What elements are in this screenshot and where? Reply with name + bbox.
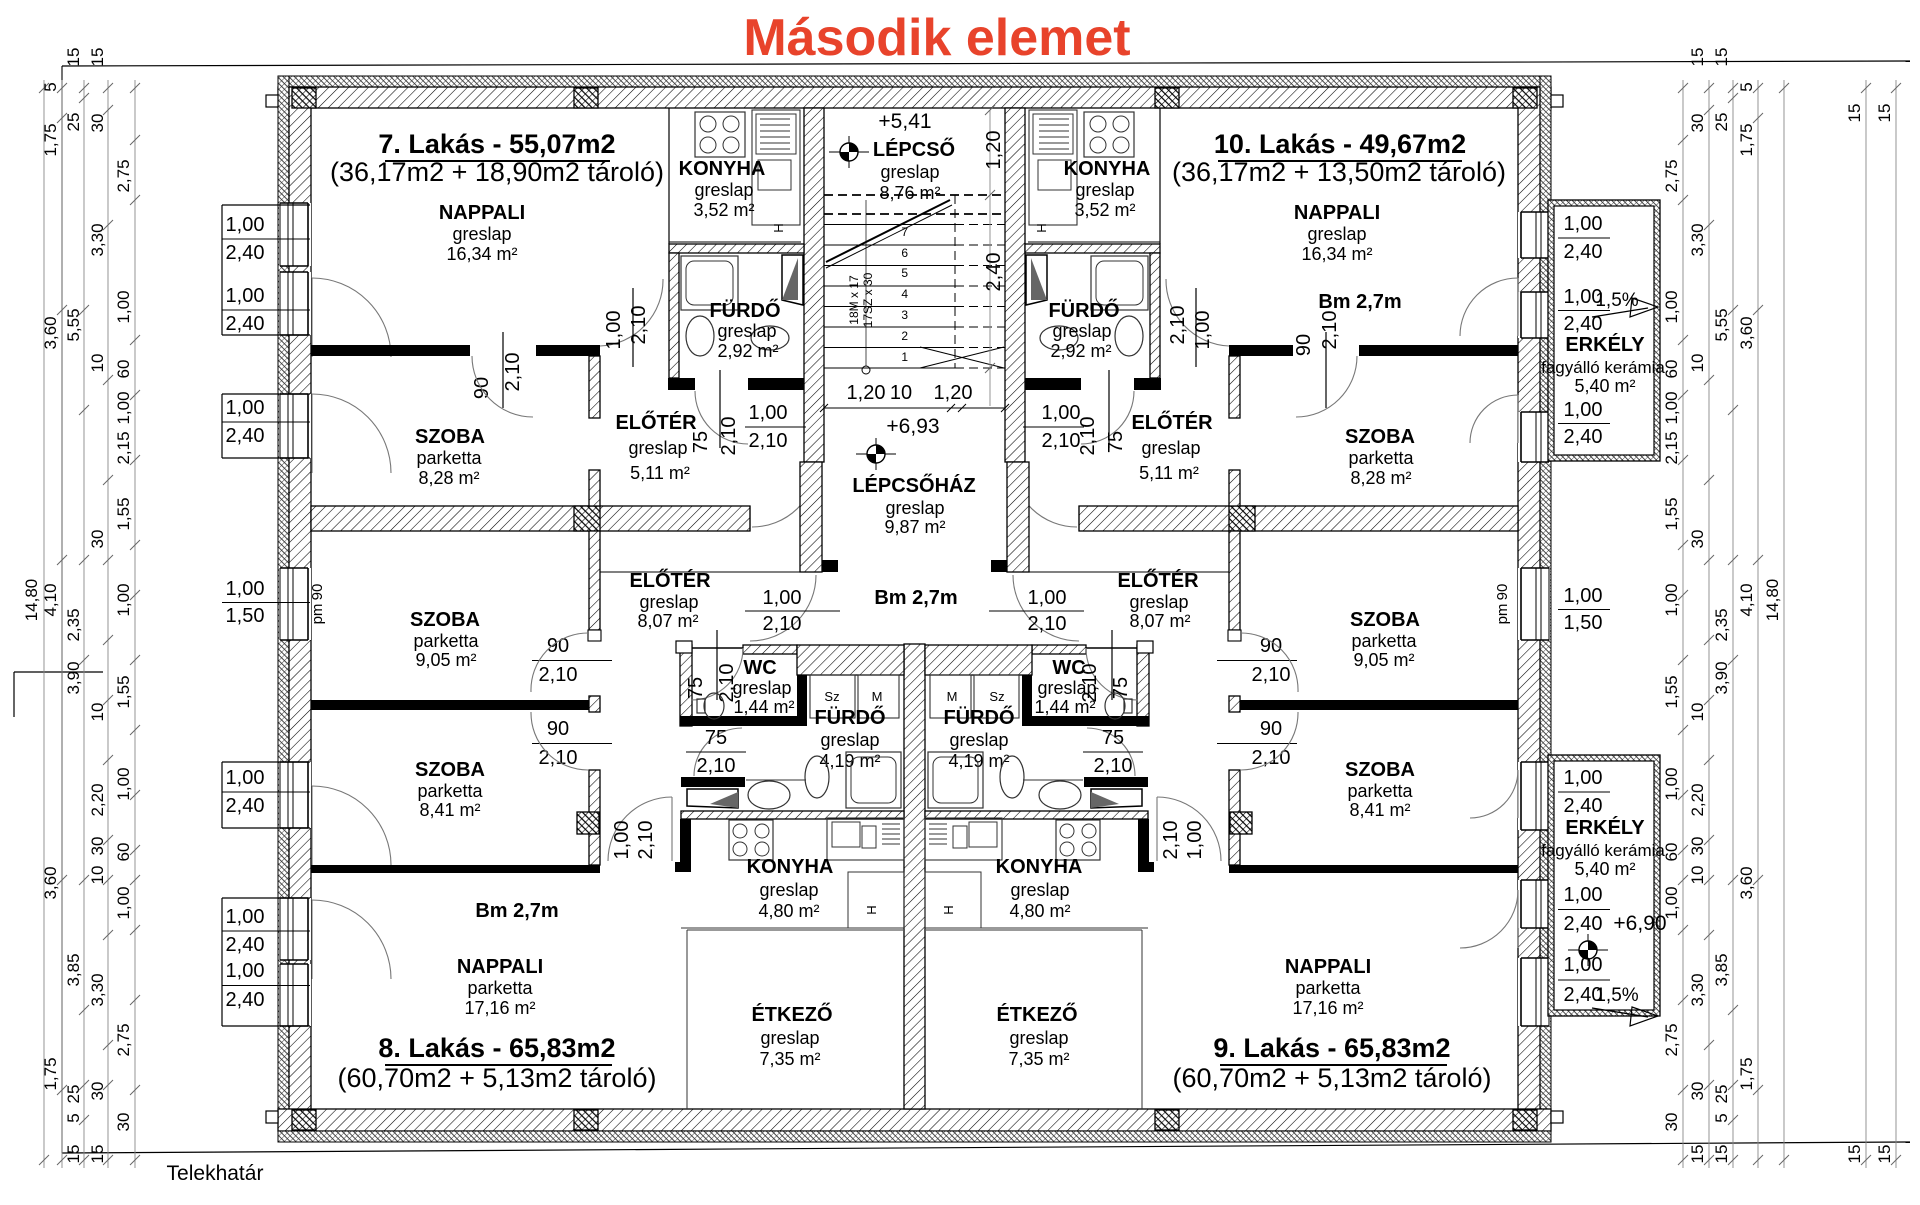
- svg-text:parketta: parketta: [417, 781, 483, 801]
- svg-text:1,55: 1,55: [1662, 497, 1681, 530]
- svg-text:1: 1: [901, 350, 908, 364]
- svg-text:1,00: 1,00: [749, 402, 788, 424]
- svg-text:4,80 m²: 4,80 m²: [758, 901, 819, 921]
- svg-text:ERKÉLY: ERKÉLY: [1565, 816, 1645, 839]
- svg-text:2,35: 2,35: [64, 608, 83, 641]
- svg-text:5: 5: [901, 266, 908, 280]
- svg-text:1,20: 1,20: [983, 131, 1005, 170]
- svg-text:3,60: 3,60: [41, 866, 60, 899]
- svg-text:KONYHA: KONYHA: [1064, 158, 1151, 180]
- svg-text:90: 90: [471, 377, 493, 399]
- svg-text:1,00: 1,00: [603, 311, 625, 350]
- svg-text:2,10: 2,10: [1319, 311, 1341, 350]
- svg-text:1,00: 1,00: [1564, 213, 1603, 235]
- svg-text:2,20: 2,20: [88, 783, 107, 816]
- svg-text:H: H: [1034, 223, 1049, 232]
- svg-text:1,00: 1,00: [1042, 402, 1081, 424]
- svg-text:Telekhatár: Telekhatár: [167, 1162, 264, 1185]
- svg-text:2,40: 2,40: [226, 425, 265, 447]
- svg-text:3,52 m²: 3,52 m²: [1074, 200, 1135, 220]
- svg-text:8. Lakás - 65,83m2: 8. Lakás - 65,83m2: [378, 1033, 615, 1063]
- svg-text:1,75: 1,75: [1737, 1057, 1756, 1090]
- svg-text:8,07 m²: 8,07 m²: [637, 611, 698, 631]
- svg-text:30: 30: [88, 114, 107, 133]
- svg-text:greslap: greslap: [452, 224, 511, 244]
- svg-text:14,80: 14,80: [1763, 579, 1782, 622]
- svg-text:WC: WC: [1052, 657, 1085, 679]
- svg-text:1,00: 1,00: [114, 391, 133, 424]
- svg-text:1,00: 1,00: [114, 886, 133, 919]
- svg-text:15: 15: [88, 1145, 107, 1164]
- svg-text:greslap: greslap: [717, 321, 776, 341]
- svg-text:NAPPALI: NAPPALI: [457, 956, 543, 978]
- svg-text:Sz: Sz: [989, 689, 1004, 704]
- svg-text:ELŐTÉR: ELŐTÉR: [615, 411, 697, 434]
- svg-text:parketta: parketta: [416, 448, 482, 468]
- svg-text:(60,70m2 + 5,13m2 tároló): (60,70m2 + 5,13m2 tároló): [338, 1063, 657, 1093]
- svg-text:ELŐTÉR: ELŐTÉR: [629, 569, 711, 592]
- svg-text:(60,70m2 + 5,13m2 tároló): (60,70m2 + 5,13m2 tároló): [1173, 1063, 1492, 1093]
- svg-text:SZOBA: SZOBA: [1345, 426, 1415, 448]
- svg-text:1,00: 1,00: [1662, 767, 1681, 800]
- svg-text:2,10: 2,10: [1042, 430, 1081, 452]
- svg-text:2,40: 2,40: [226, 313, 265, 335]
- svg-text:Második elemet: Második elemet: [743, 9, 1130, 67]
- svg-text:5: 5: [1737, 82, 1756, 91]
- svg-text:4,19 m²: 4,19 m²: [819, 751, 880, 771]
- svg-text:greslap: greslap: [694, 180, 753, 200]
- svg-text:15: 15: [1875, 104, 1894, 123]
- svg-text:1,50: 1,50: [1564, 612, 1603, 634]
- svg-text:75: 75: [705, 727, 727, 749]
- svg-text:SZOBA: SZOBA: [415, 759, 485, 781]
- svg-text:Sz: Sz: [824, 689, 839, 704]
- svg-text:5: 5: [1712, 1113, 1731, 1122]
- svg-text:4,10: 4,10: [41, 583, 60, 616]
- svg-text:8,28 m²: 8,28 m²: [1350, 468, 1411, 488]
- svg-text:FÜRDŐ: FÜRDŐ: [709, 299, 780, 322]
- svg-text:15: 15: [1712, 48, 1731, 67]
- svg-text:16,34 m²: 16,34 m²: [446, 244, 517, 264]
- svg-text:1,00: 1,00: [226, 767, 265, 789]
- svg-text:NAPPALI: NAPPALI: [1285, 956, 1371, 978]
- svg-text:15: 15: [88, 48, 107, 67]
- svg-text:greslap: greslap: [759, 880, 818, 900]
- svg-text:7. Lakás - 55,07m2: 7. Lakás - 55,07m2: [378, 129, 615, 159]
- svg-text:1,00: 1,00: [1564, 767, 1603, 789]
- svg-text:pm: pm: [1494, 604, 1511, 625]
- svg-text:2,10: 2,10: [749, 430, 788, 452]
- svg-text:15: 15: [1875, 1145, 1894, 1164]
- svg-text:2,10: 2,10: [1028, 613, 1067, 635]
- svg-text:2,15: 2,15: [1662, 431, 1681, 464]
- svg-text:15: 15: [1688, 48, 1707, 67]
- svg-text:1,00: 1,00: [1564, 954, 1603, 976]
- svg-text:15: 15: [1712, 1145, 1731, 1164]
- svg-text:75: 75: [1102, 727, 1124, 749]
- svg-text:10: 10: [1688, 866, 1707, 885]
- svg-text:2,10: 2,10: [697, 755, 736, 777]
- svg-text:1,00: 1,00: [226, 906, 265, 928]
- svg-text:8,41 m²: 8,41 m²: [1349, 800, 1410, 820]
- svg-text:2,10: 2,10: [635, 821, 657, 860]
- svg-text:25: 25: [1712, 1085, 1731, 1104]
- svg-text:parketta: parketta: [1295, 978, 1361, 998]
- svg-text:30: 30: [1688, 530, 1707, 549]
- svg-text:greslap: greslap: [820, 730, 879, 750]
- svg-text:SZOBA: SZOBA: [1345, 759, 1415, 781]
- svg-text:2,40: 2,40: [226, 795, 265, 817]
- svg-text:LÉPCSŐ: LÉPCSŐ: [873, 138, 955, 161]
- svg-text:2,40: 2,40: [1564, 913, 1603, 935]
- svg-text:1,20: 1,20: [934, 382, 973, 404]
- svg-text:1,00: 1,00: [611, 821, 633, 860]
- svg-text:2,75: 2,75: [114, 1023, 133, 1056]
- svg-text:2,40: 2,40: [1564, 795, 1603, 817]
- svg-text:2,40: 2,40: [226, 242, 265, 264]
- svg-text:parketta: parketta: [413, 631, 479, 651]
- svg-text:5,11 m²: 5,11 m²: [630, 463, 690, 483]
- svg-text:+6,90: +6,90: [1613, 912, 1666, 935]
- svg-text:7,35 m²: 7,35 m²: [1008, 1049, 1069, 1069]
- svg-text:1,00: 1,00: [1028, 587, 1067, 609]
- svg-text:25: 25: [64, 1085, 83, 1104]
- svg-text:Bm 2,7m: Bm 2,7m: [874, 587, 957, 609]
- svg-text:2,75: 2,75: [1662, 159, 1681, 192]
- svg-text:1,00: 1,00: [1662, 886, 1681, 919]
- svg-text:5: 5: [41, 82, 60, 91]
- svg-text:greslap: greslap: [628, 438, 687, 458]
- svg-text:5,40 m²: 5,40 m²: [1574, 376, 1635, 396]
- svg-text:90: 90: [309, 584, 326, 601]
- svg-text:2,10: 2,10: [1160, 821, 1182, 860]
- svg-text:90: 90: [547, 635, 569, 657]
- svg-text:15: 15: [64, 48, 83, 67]
- svg-text:60: 60: [1662, 843, 1681, 862]
- svg-text:1,00: 1,00: [114, 767, 133, 800]
- svg-text:2,10: 2,10: [539, 664, 578, 686]
- svg-text:M: M: [947, 689, 958, 704]
- svg-text:greslap: greslap: [1037, 678, 1096, 698]
- svg-text:4,19 m²: 4,19 m²: [948, 751, 1009, 771]
- svg-text:SZOBA: SZOBA: [415, 426, 485, 448]
- svg-text:2,20: 2,20: [1688, 783, 1707, 816]
- svg-text:1,55: 1,55: [114, 675, 133, 708]
- svg-text:KONYHA: KONYHA: [996, 856, 1083, 878]
- svg-text:ERKÉLY: ERKÉLY: [1565, 333, 1645, 356]
- svg-text:Bm 2,7m: Bm 2,7m: [1318, 291, 1401, 313]
- svg-text:30: 30: [114, 1113, 133, 1132]
- svg-text:ELŐTÉR: ELŐTÉR: [1131, 411, 1213, 434]
- svg-text:1,00: 1,00: [226, 285, 265, 307]
- svg-text:10: 10: [890, 382, 912, 404]
- svg-text:1,44 m²: 1,44 m²: [1034, 697, 1095, 717]
- svg-text:75: 75: [685, 677, 707, 699]
- svg-text:10. Lakás - 49,67m2: 10. Lakás - 49,67m2: [1214, 129, 1466, 159]
- svg-text:9,05 m²: 9,05 m²: [415, 650, 476, 670]
- svg-text:NAPPALI: NAPPALI: [1294, 202, 1380, 224]
- svg-text:90: 90: [1293, 334, 1315, 356]
- svg-text:90: 90: [547, 718, 569, 740]
- svg-text:10: 10: [88, 703, 107, 722]
- svg-text:NAPPALI: NAPPALI: [439, 202, 525, 224]
- svg-text:30: 30: [1688, 114, 1707, 133]
- svg-text:4: 4: [901, 287, 908, 301]
- svg-text:60: 60: [1662, 360, 1681, 379]
- svg-text:H: H: [771, 223, 786, 232]
- svg-text:greslap: greslap: [1129, 592, 1188, 612]
- svg-text:KONYHA: KONYHA: [747, 856, 834, 878]
- svg-text:LÉPCSŐHÁZ: LÉPCSŐHÁZ: [852, 474, 975, 497]
- svg-text:5,40 m²: 5,40 m²: [1574, 859, 1635, 879]
- svg-text:17SZ x 30: 17SZ x 30: [861, 272, 875, 327]
- svg-text:60: 60: [114, 843, 133, 862]
- svg-text:1,00: 1,00: [226, 578, 265, 600]
- svg-text:+5,41: +5,41: [878, 110, 931, 133]
- svg-text:8,28 m²: 8,28 m²: [418, 468, 479, 488]
- svg-text:10: 10: [1688, 354, 1707, 373]
- svg-text:30: 30: [88, 837, 107, 856]
- svg-text:1,75: 1,75: [41, 1057, 60, 1090]
- svg-text:2,75: 2,75: [1662, 1023, 1681, 1056]
- svg-text:FÜRDŐ: FÜRDŐ: [1048, 299, 1119, 322]
- svg-text:6: 6: [901, 246, 908, 260]
- svg-text:ÉTKEZŐ: ÉTKEZŐ: [751, 1003, 832, 1026]
- svg-text:1,55: 1,55: [1662, 675, 1681, 708]
- svg-text:75: 75: [1105, 431, 1127, 453]
- svg-text:18M x 17: 18M x 17: [847, 275, 861, 325]
- svg-text:H: H: [941, 905, 956, 914]
- svg-text:1,00: 1,00: [1662, 583, 1681, 616]
- svg-text:30: 30: [1688, 837, 1707, 856]
- svg-text:25: 25: [1712, 113, 1731, 132]
- svg-text:17,16 m²: 17,16 m²: [464, 998, 535, 1018]
- svg-text:2,10: 2,10: [628, 306, 650, 345]
- svg-text:3,30: 3,30: [88, 973, 107, 1006]
- svg-text:30: 30: [1688, 1082, 1707, 1101]
- svg-text:greslap: greslap: [732, 678, 791, 698]
- svg-text:1,00: 1,00: [1192, 311, 1214, 350]
- svg-text:1,00: 1,00: [1564, 585, 1603, 607]
- svg-text:parketta: parketta: [467, 978, 533, 998]
- svg-text:greslap: greslap: [949, 730, 1008, 750]
- svg-text:1,75: 1,75: [41, 123, 60, 156]
- svg-text:3,85: 3,85: [64, 953, 83, 986]
- svg-text:2,75: 2,75: [114, 159, 133, 192]
- svg-text:1,44 m²: 1,44 m²: [733, 697, 794, 717]
- svg-text:5,55: 5,55: [64, 308, 83, 341]
- svg-text:1,50: 1,50: [226, 605, 265, 627]
- svg-text:3,30: 3,30: [1688, 223, 1707, 256]
- svg-text:KONYHA: KONYHA: [679, 158, 766, 180]
- svg-text:2,40: 2,40: [1564, 241, 1603, 263]
- svg-text:1,00: 1,00: [1184, 821, 1206, 860]
- svg-text:60: 60: [114, 360, 133, 379]
- svg-text:+6,93: +6,93: [886, 415, 939, 438]
- svg-text:90: 90: [1260, 635, 1282, 657]
- svg-text:1,20: 1,20: [847, 382, 886, 404]
- svg-text:2,10: 2,10: [1077, 417, 1099, 456]
- svg-text:4,80 m²: 4,80 m²: [1009, 901, 1070, 921]
- svg-text:2,40: 2,40: [226, 989, 265, 1011]
- svg-text:3,30: 3,30: [88, 223, 107, 256]
- svg-text:fagyálló kerámia: fagyálló kerámia: [1541, 841, 1665, 860]
- svg-text:1,00: 1,00: [226, 960, 265, 982]
- svg-text:2,92 m²: 2,92 m²: [717, 341, 778, 361]
- svg-text:(36,17m2 + 18,90m2 tároló): (36,17m2 + 18,90m2 tároló): [330, 157, 664, 187]
- svg-text:3,60: 3,60: [1737, 316, 1756, 349]
- svg-text:2,10: 2,10: [1252, 664, 1291, 686]
- svg-text:Bm 2,7m: Bm 2,7m: [475, 900, 558, 922]
- svg-text:3,60: 3,60: [1737, 866, 1756, 899]
- svg-text:90: 90: [1260, 718, 1282, 740]
- svg-text:5,11 m²: 5,11 m²: [1139, 463, 1199, 483]
- svg-text:2,40: 2,40: [1564, 426, 1603, 448]
- svg-text:1,00: 1,00: [1564, 884, 1603, 906]
- svg-text:15: 15: [1845, 1145, 1864, 1164]
- svg-text:3,90: 3,90: [64, 661, 83, 694]
- svg-text:30: 30: [88, 530, 107, 549]
- svg-text:greslap: greslap: [1010, 880, 1069, 900]
- svg-text:5: 5: [64, 1113, 83, 1122]
- svg-text:8,41 m²: 8,41 m²: [419, 800, 480, 820]
- svg-text:75: 75: [690, 431, 712, 453]
- svg-text:30: 30: [88, 1082, 107, 1101]
- svg-text:greslap: greslap: [1052, 321, 1111, 341]
- svg-text:1,00: 1,00: [1564, 399, 1603, 421]
- svg-text:15: 15: [1688, 1145, 1707, 1164]
- svg-text:2,10: 2,10: [1094, 755, 1133, 777]
- svg-text:greslap: greslap: [880, 162, 939, 182]
- svg-text:2,35: 2,35: [1712, 608, 1731, 641]
- svg-text:(36,17m2 + 13,50m2 tároló): (36,17m2 + 13,50m2 tároló): [1172, 157, 1506, 187]
- svg-text:greslap: greslap: [1009, 1028, 1068, 1048]
- svg-text:FÜRDŐ: FÜRDŐ: [943, 706, 1014, 729]
- svg-text:1,00: 1,00: [226, 214, 265, 236]
- svg-text:90: 90: [1494, 584, 1511, 601]
- svg-text:2,40: 2,40: [983, 253, 1005, 292]
- svg-text:2,92 m²: 2,92 m²: [1050, 341, 1111, 361]
- svg-text:8,07 m²: 8,07 m²: [1129, 611, 1190, 631]
- svg-text:17,16 m²: 17,16 m²: [1292, 998, 1363, 1018]
- svg-text:2,40: 2,40: [226, 934, 265, 956]
- svg-text:1,5%: 1,5%: [1595, 985, 1638, 1006]
- svg-text:pm: pm: [309, 604, 326, 625]
- svg-text:2,10: 2,10: [763, 613, 802, 635]
- svg-text:2,15: 2,15: [114, 431, 133, 464]
- svg-text:3,90: 3,90: [1712, 661, 1731, 694]
- svg-text:M: M: [872, 689, 883, 704]
- svg-text:ELŐTÉR: ELŐTÉR: [1117, 569, 1199, 592]
- svg-text:3,85: 3,85: [1712, 953, 1731, 986]
- svg-text:parketta: parketta: [1351, 631, 1417, 651]
- svg-text:3,60: 3,60: [41, 316, 60, 349]
- svg-text:1,55: 1,55: [114, 497, 133, 530]
- svg-text:4,10: 4,10: [1737, 583, 1756, 616]
- svg-text:SZOBA: SZOBA: [410, 609, 480, 631]
- svg-text:ÉTKEZŐ: ÉTKEZŐ: [996, 1003, 1077, 1026]
- svg-text:10: 10: [1688, 703, 1707, 722]
- svg-text:3: 3: [901, 308, 908, 322]
- svg-text:greslap: greslap: [1075, 180, 1134, 200]
- svg-text:14,80: 14,80: [22, 579, 41, 622]
- svg-text:2,10: 2,10: [1167, 306, 1189, 345]
- svg-text:7,35 m²: 7,35 m²: [759, 1049, 820, 1069]
- svg-text:SZOBA: SZOBA: [1350, 609, 1420, 631]
- svg-text:1,00: 1,00: [114, 290, 133, 323]
- svg-text:2,10: 2,10: [718, 417, 740, 456]
- svg-text:16,34 m²: 16,34 m²: [1301, 244, 1372, 264]
- svg-text:1,00: 1,00: [226, 397, 265, 419]
- svg-text:1,75: 1,75: [1737, 123, 1756, 156]
- svg-text:1,00: 1,00: [114, 583, 133, 616]
- svg-text:parketta: parketta: [1348, 448, 1414, 468]
- svg-text:WC: WC: [743, 657, 776, 679]
- svg-text:5,55: 5,55: [1712, 308, 1731, 341]
- svg-text:3,52 m²: 3,52 m²: [693, 200, 754, 220]
- svg-text:greslap: greslap: [1141, 438, 1200, 458]
- svg-text:1,00: 1,00: [763, 587, 802, 609]
- svg-text:FÜRDŐ: FÜRDŐ: [814, 706, 885, 729]
- svg-text:9,87 m²: 9,87 m²: [884, 517, 945, 537]
- svg-text:1,00: 1,00: [1662, 290, 1681, 323]
- svg-text:fagyálló kerámia: fagyálló kerámia: [1541, 358, 1665, 377]
- svg-text:15: 15: [64, 1145, 83, 1164]
- svg-text:10: 10: [88, 866, 107, 885]
- svg-text:30: 30: [1662, 1113, 1681, 1132]
- svg-text:parketta: parketta: [1347, 781, 1413, 801]
- svg-text:10: 10: [88, 354, 107, 373]
- svg-text:8,76 m²: 8,76 m²: [879, 183, 940, 203]
- svg-text:9. Lakás - 65,83m2: 9. Lakás - 65,83m2: [1213, 1033, 1450, 1063]
- svg-text:7: 7: [901, 225, 908, 239]
- svg-text:greslap: greslap: [885, 498, 944, 518]
- svg-text:9,05 m²: 9,05 m²: [1353, 650, 1414, 670]
- svg-text:2,10: 2,10: [502, 353, 524, 392]
- svg-text:15: 15: [1845, 104, 1864, 123]
- svg-text:2: 2: [901, 329, 908, 343]
- svg-text:3,30: 3,30: [1688, 973, 1707, 1006]
- svg-text:1,00: 1,00: [1662, 391, 1681, 424]
- svg-text:H: H: [864, 905, 879, 914]
- svg-text:greslap: greslap: [1307, 224, 1366, 244]
- svg-text:25: 25: [64, 113, 83, 132]
- svg-text:greslap: greslap: [639, 592, 698, 612]
- svg-text:greslap: greslap: [760, 1028, 819, 1048]
